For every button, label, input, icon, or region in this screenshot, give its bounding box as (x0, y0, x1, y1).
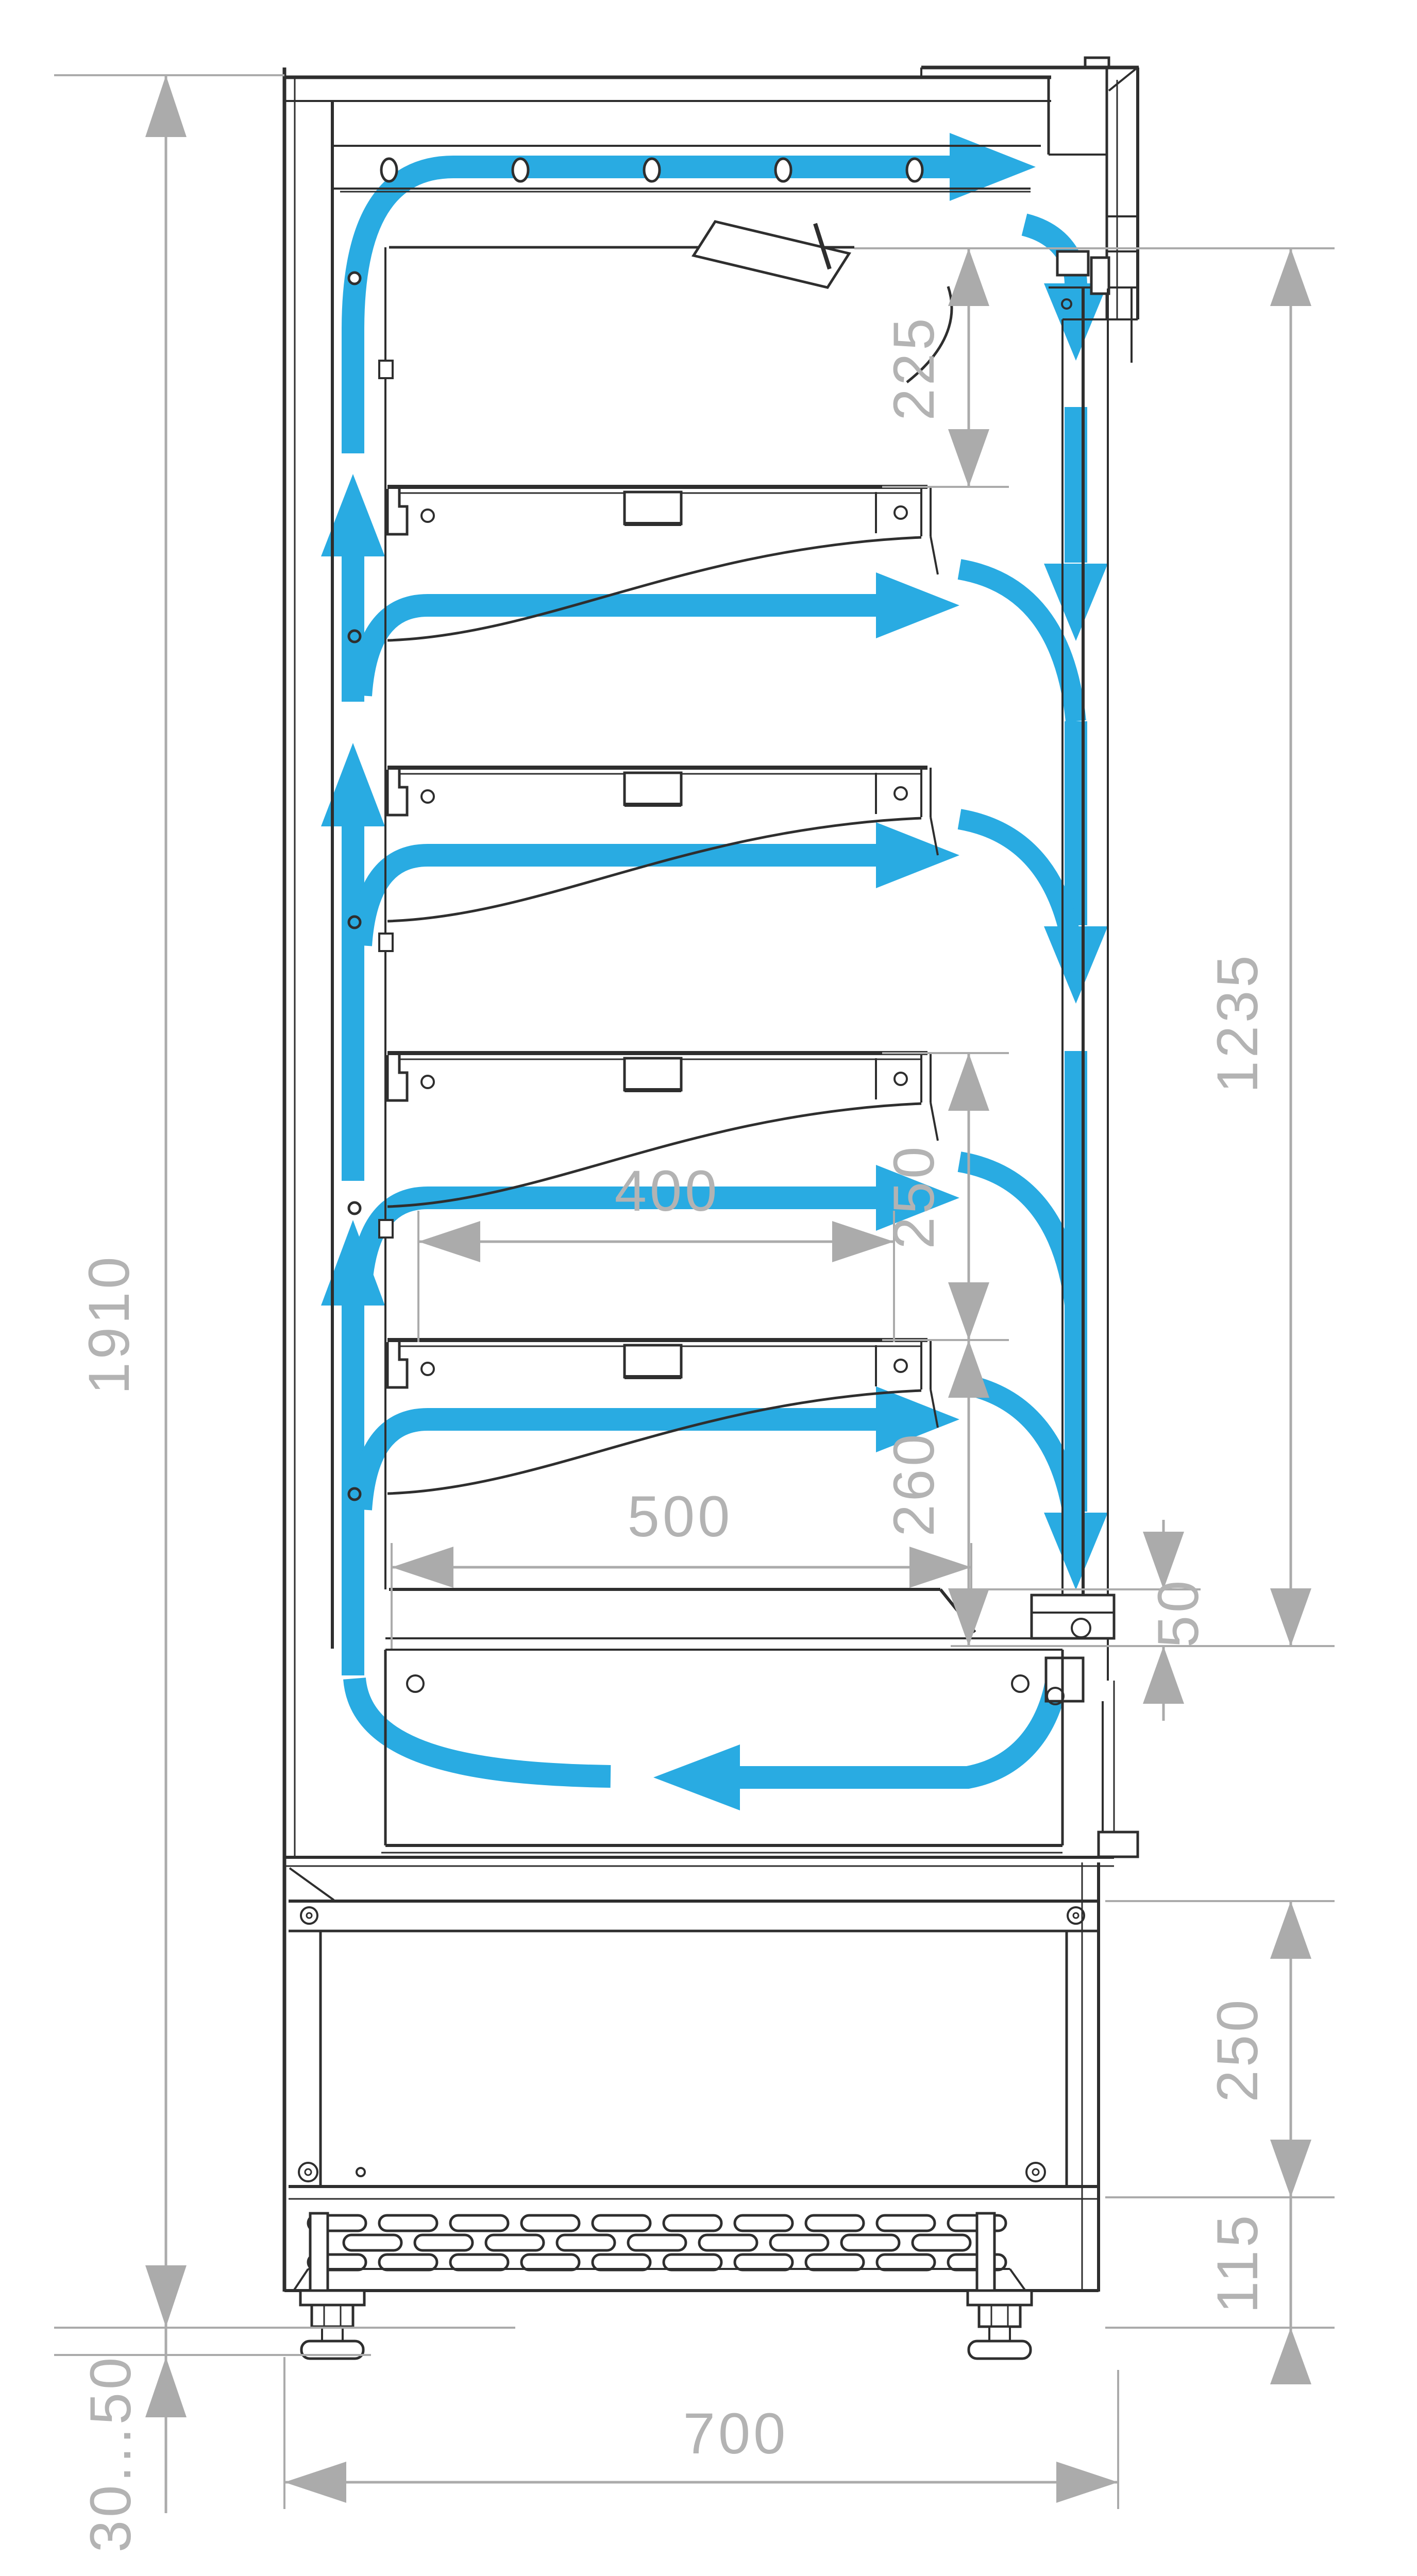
dim-label-interior-height: 1235 (1205, 952, 1270, 1093)
dim-grille-height: 115 (1205, 2212, 1311, 2384)
dim-shelf-depth: 400 (418, 1159, 894, 1262)
airflow-return-right (740, 1667, 1058, 1777)
frame-screw (301, 1907, 317, 1924)
dim-label-shelf-depth: 400 (615, 1159, 720, 1223)
cabinet-section-diagram: 1910 30...50 700 225 1235 (0, 0, 1417, 2576)
panel-clip (379, 361, 393, 378)
dim-last-shelf-to-deck: 260 (882, 1340, 989, 1646)
dim-label-deck-depth: 500 (628, 1484, 733, 1549)
panel-hole (349, 273, 360, 284)
frame-screw-center (305, 2169, 311, 2175)
dim-canopy-to-first-shelf: 225 (882, 248, 989, 487)
shelf (387, 487, 938, 640)
panel-clip (379, 934, 393, 951)
dim-interior-height: 1235 (1205, 248, 1311, 1646)
outlet-hole (513, 159, 528, 181)
airflow-shelf-arrow (361, 819, 1076, 971)
dim-label-grille-height: 115 (1205, 2212, 1270, 2314)
frame-screw (1026, 2163, 1045, 2181)
adjustable-foot (300, 2291, 364, 2359)
airflow-right-arrowhead (950, 133, 1036, 201)
frame-screw-center (1033, 2169, 1039, 2175)
dim-label-overall-depth: 700 (683, 2401, 789, 2466)
hinge-pin (1091, 258, 1109, 294)
dim-label-shelf-spacing: 250 (882, 1144, 946, 1249)
shelves (387, 487, 938, 1494)
leg-bracket (977, 2213, 994, 2292)
small-screw (357, 2168, 365, 2176)
dim-label-feet-range: 30...50 (78, 2354, 143, 2553)
airflow-left-arrowhead (653, 1744, 740, 1810)
frame-screw (299, 2163, 317, 2181)
frame-screw-center (307, 1913, 312, 1918)
dim-label-canopy-to-first-shelf: 225 (882, 315, 946, 421)
door-seal-block (1046, 1658, 1083, 1701)
airflow-up-arrowhead (321, 474, 385, 556)
basin-screw (1012, 1675, 1028, 1692)
diagram-page: 1910 30...50 700 225 1235 (0, 0, 1417, 2576)
dim-intake-gap: 50 (1143, 1520, 1210, 1721)
dim-label-machine-compartment: 250 (1205, 1997, 1270, 2103)
leg-bracket (310, 2213, 328, 2292)
airflow-canopy-duct (353, 167, 951, 453)
dim-shelf-spacing: 250 (882, 1053, 989, 1340)
panel-hole (349, 1202, 360, 1214)
dim-overall-depth: 700 (284, 2401, 1118, 2503)
dim-label-intake-gap: 50 (1146, 1578, 1210, 1648)
outlet-hole (907, 159, 922, 181)
grille-end-slope (1010, 2269, 1025, 2291)
sill-ledge (1099, 1832, 1138, 1857)
frame-hatch (1109, 69, 1136, 91)
panel-clip (379, 1220, 393, 1238)
grille-end-slope (294, 2269, 308, 2291)
frame-screw-center (1073, 1913, 1078, 1918)
outlet-hole (644, 159, 660, 181)
base-hatch (290, 1868, 334, 1900)
airflow-return-left (355, 1679, 611, 1776)
adjustable-foot (968, 2291, 1032, 2359)
basin-screw (407, 1675, 424, 1692)
outlet-hole (775, 159, 791, 181)
dim-feet-range: 30...50 (78, 2354, 187, 2553)
ventilation-grille (308, 2215, 1006, 2270)
hinge-block (1057, 251, 1088, 275)
dim-label-last-shelf-to-deck: 260 (882, 1431, 946, 1537)
outlet-hole (381, 159, 397, 181)
dimension-annotations: 1910 30...50 700 225 1235 (54, 75, 1335, 2552)
airflow-shelf-arrow (361, 569, 1076, 721)
dim-overall-height: 1910 (77, 75, 187, 2513)
airflow-up-arrowhead (321, 743, 385, 826)
dim-label-overall-height: 1910 (77, 1253, 141, 1394)
